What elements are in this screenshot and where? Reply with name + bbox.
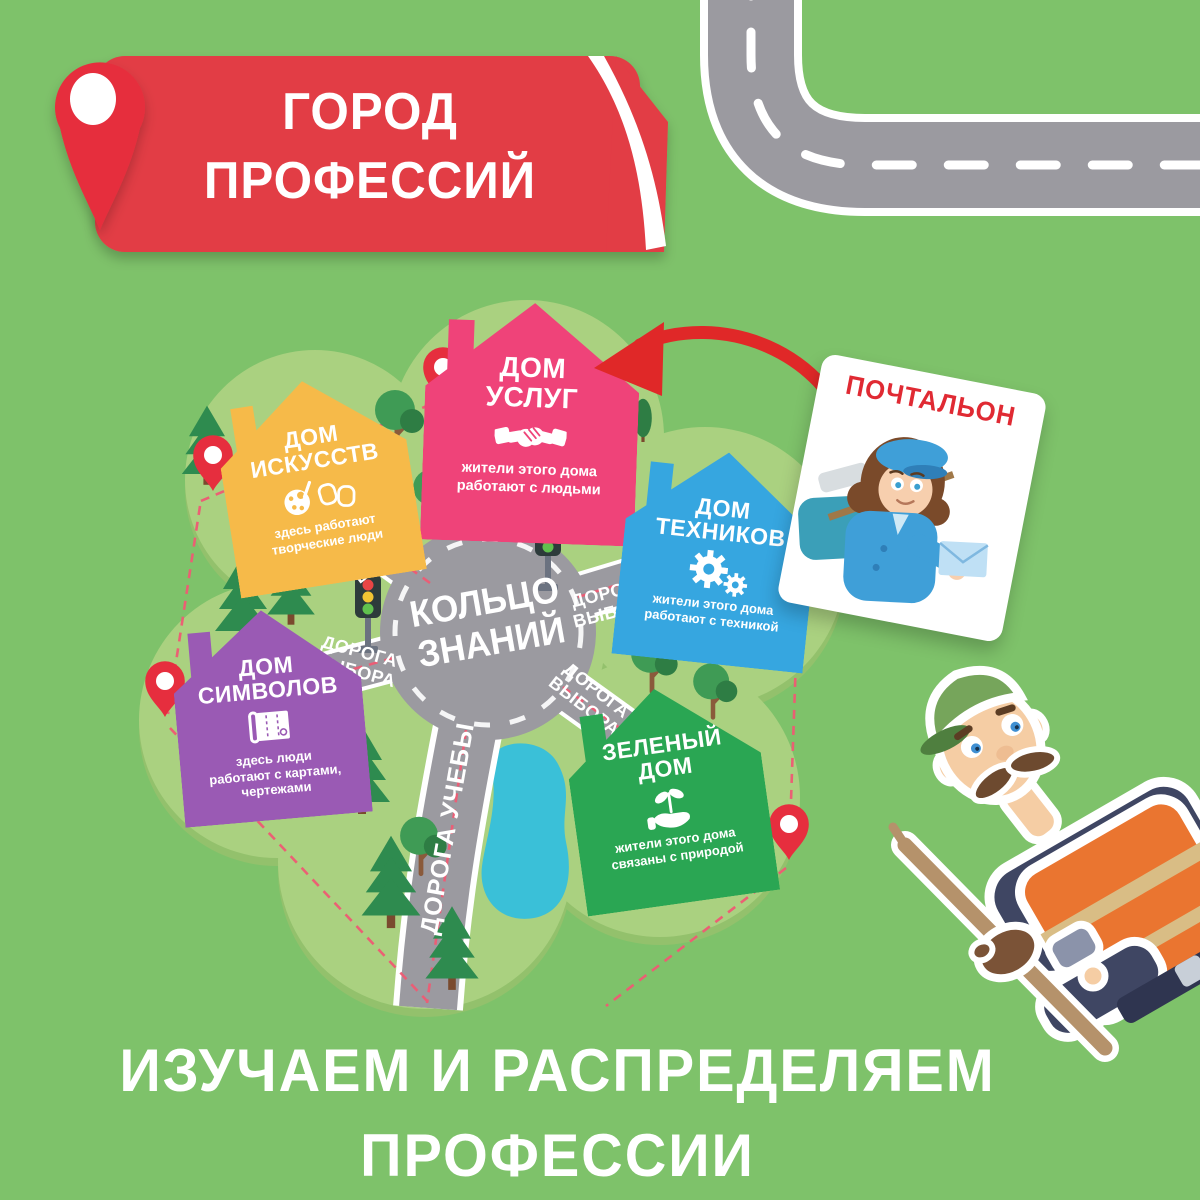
profession-card: ПОЧТАЛЬОН [776, 353, 1048, 644]
poster: КОЛЬЦО ЗНАНИЙ ДОРОГА ВЫБОРА ДОРОГА ВЫБОР… [0, 0, 1200, 1200]
banner-title: ГОРОД ПРОФЕССИЙ [161, 78, 579, 215]
postwoman-with-letters [776, 395, 1040, 644]
street-cleaner-with-broom [893, 649, 1200, 1061]
